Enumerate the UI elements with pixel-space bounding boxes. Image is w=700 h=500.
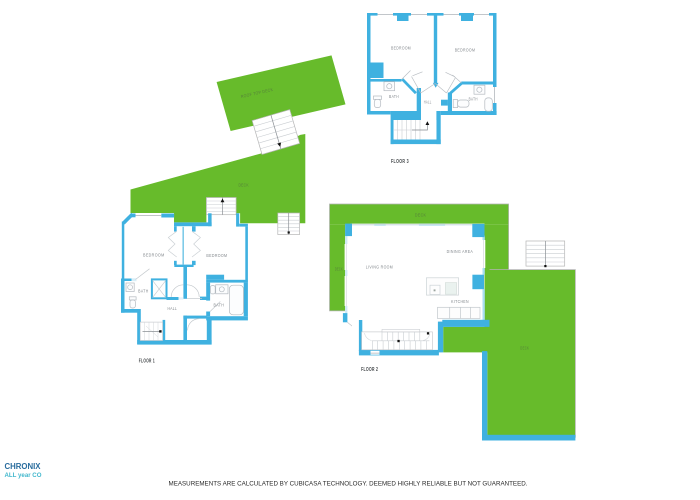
svg-text:ALL year CO: ALL year CO — [5, 472, 42, 479]
svg-text:BATH: BATH — [138, 289, 149, 294]
svg-text:DINING AREA: DINING AREA — [447, 249, 474, 254]
svg-text:DECK: DECK — [335, 266, 343, 271]
svg-text:FLOOR 1: FLOOR 1 — [139, 358, 155, 364]
svg-text:BEDROOM: BEDROOM — [455, 48, 476, 53]
svg-text:BEDROOM: BEDROOM — [391, 46, 411, 51]
svg-text:DECK: DECK — [520, 345, 529, 350]
svg-text:BATH: BATH — [389, 94, 399, 99]
svg-text:BATH: BATH — [469, 97, 478, 102]
svg-text:BEDROOM: BEDROOM — [143, 253, 165, 258]
svg-text:KITCHEN: KITCHEN — [451, 299, 469, 304]
svg-text:DECK: DECK — [238, 182, 249, 187]
svg-text:CHRONIX: CHRONIX — [5, 462, 42, 471]
svg-text:BATH: BATH — [214, 303, 225, 308]
svg-text:MEASUREMENTS ARE CALCULATED BY: MEASUREMENTS ARE CALCULATED BY CUBICASA … — [169, 481, 528, 488]
svg-text:HALL: HALL — [424, 99, 432, 104]
svg-text:DECK: DECK — [415, 213, 426, 218]
svg-text:HALL: HALL — [168, 306, 178, 311]
svg-text:FLOOR 2: FLOOR 2 — [361, 367, 378, 373]
svg-text:LIVING ROOM: LIVING ROOM — [366, 264, 393, 269]
svg-text:BEDROOM: BEDROOM — [206, 253, 227, 258]
svg-text:FLOOR 3: FLOOR 3 — [391, 159, 409, 165]
